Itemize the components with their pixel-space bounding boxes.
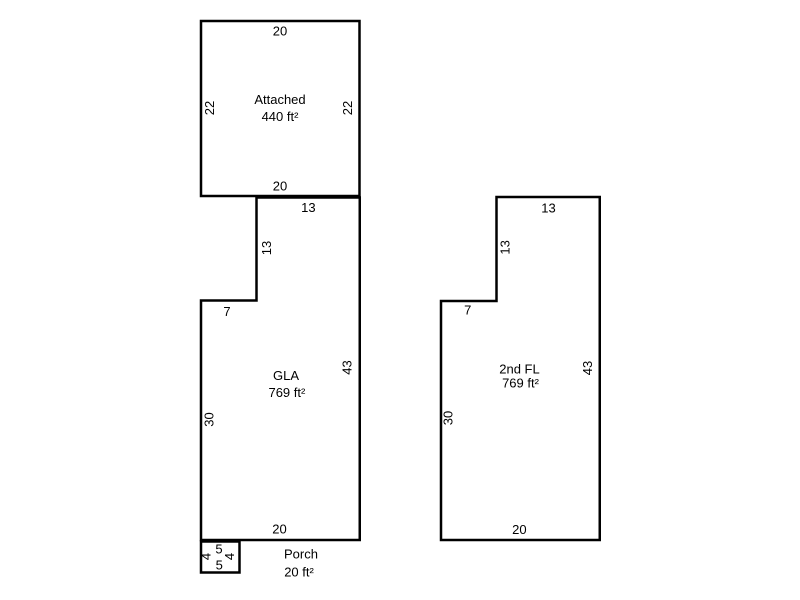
svg-text:22: 22 bbox=[340, 101, 355, 115]
svg-text:4: 4 bbox=[199, 553, 214, 560]
svg-text:13: 13 bbox=[498, 240, 513, 254]
svg-text:43: 43 bbox=[580, 361, 595, 375]
svg-text:7: 7 bbox=[464, 303, 471, 318]
svg-text:22: 22 bbox=[202, 101, 217, 115]
svg-text:13: 13 bbox=[541, 201, 555, 216]
svg-text:GLA: GLA bbox=[273, 368, 299, 383]
svg-text:20: 20 bbox=[273, 24, 287, 39]
svg-text:20 ft²: 20 ft² bbox=[284, 565, 314, 580]
svg-text:20: 20 bbox=[273, 179, 287, 194]
svg-text:43: 43 bbox=[340, 360, 355, 374]
svg-text:13: 13 bbox=[259, 241, 274, 255]
svg-text:4: 4 bbox=[222, 553, 237, 560]
svg-text:7: 7 bbox=[223, 304, 230, 319]
svg-text:440 ft²: 440 ft² bbox=[262, 109, 300, 124]
svg-text:30: 30 bbox=[441, 411, 456, 425]
svg-text:30: 30 bbox=[202, 412, 217, 426]
svg-text:13: 13 bbox=[301, 200, 315, 215]
svg-text:769 ft²: 769 ft² bbox=[268, 385, 306, 400]
svg-text:20: 20 bbox=[272, 522, 286, 537]
svg-text:Porch: Porch bbox=[284, 547, 318, 562]
svg-text:769 ft²: 769 ft² bbox=[502, 376, 540, 391]
svg-text:2nd FL: 2nd FL bbox=[499, 362, 539, 377]
svg-text:20: 20 bbox=[512, 522, 526, 537]
svg-text:Attached: Attached bbox=[254, 92, 305, 107]
